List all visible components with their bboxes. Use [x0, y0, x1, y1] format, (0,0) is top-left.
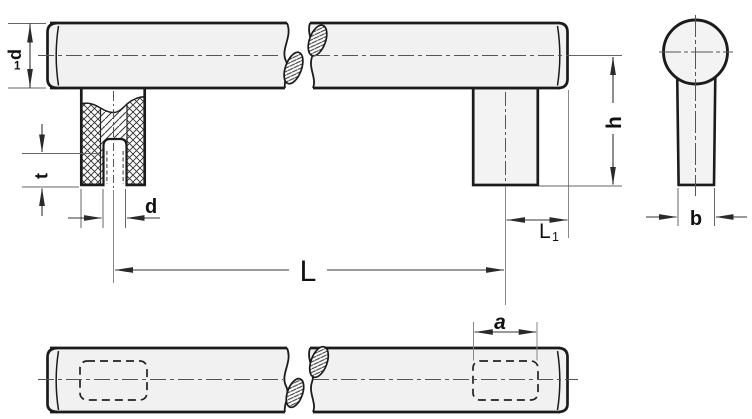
label-b: b — [690, 208, 702, 230]
label-d: d — [145, 196, 157, 218]
front-view — [38, 23, 577, 194]
dim-b: b — [646, 188, 747, 230]
label-L1: L — [539, 220, 551, 243]
label-a: a — [494, 311, 506, 334]
side-view — [659, 15, 733, 196]
bottom-view — [38, 344, 578, 412]
label-L: L — [300, 255, 317, 288]
label-d1: d — [5, 49, 25, 60]
tube-right-piece — [306, 344, 567, 412]
left-leg-section — [80, 88, 146, 194]
technical-drawing-canvas: d 1 t d L L 1 — [0, 0, 752, 419]
tubular-handle-drawing: d 1 t d L L 1 — [0, 0, 752, 419]
label-t: t — [32, 173, 52, 179]
label-L1-sub: 1 — [552, 230, 559, 244]
label-h: h — [603, 116, 626, 129]
dim-L: L — [114, 186, 506, 305]
label-d1-sub: 1 — [14, 61, 21, 73]
break-ellipse — [283, 376, 307, 409]
right-leg — [473, 88, 538, 185]
